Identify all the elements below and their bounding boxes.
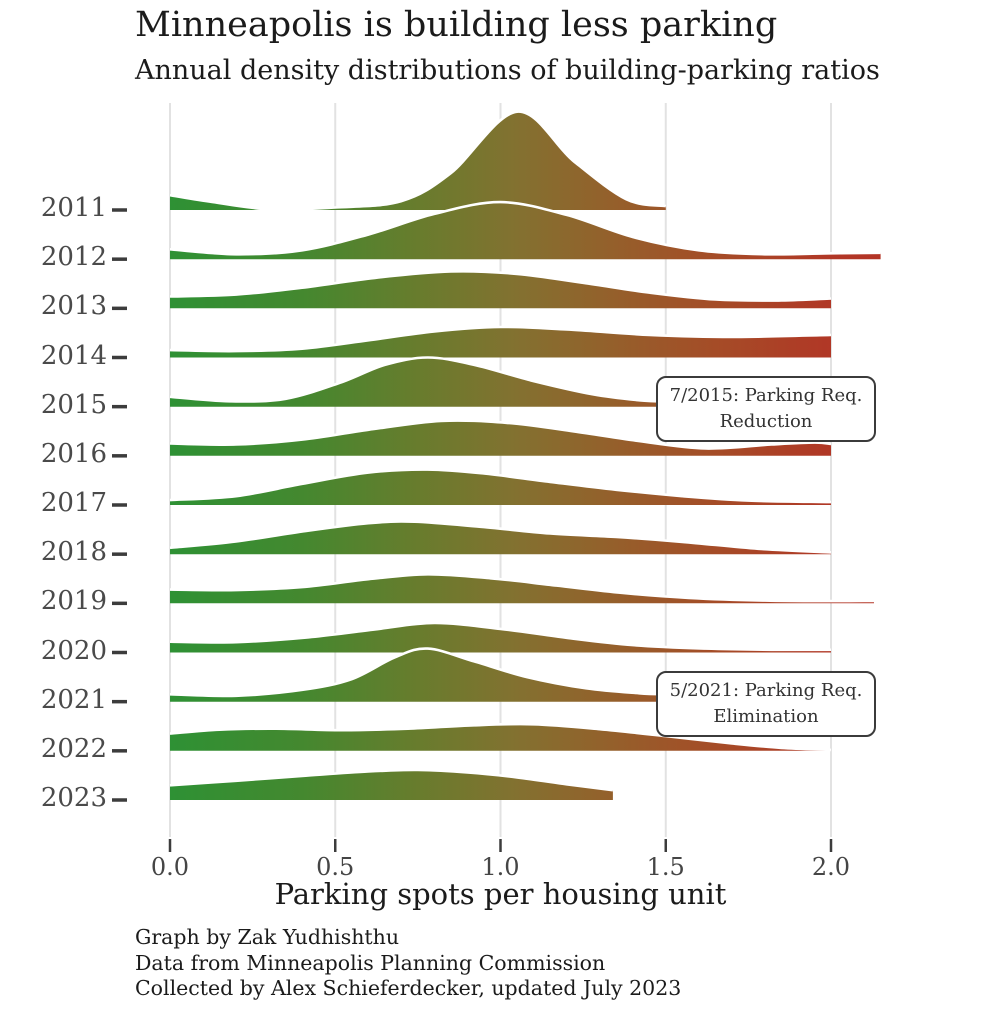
year-label-2019: 2019: [0, 586, 107, 616]
year-label-2012: 2012: [0, 242, 107, 272]
year-label-2011: 2011: [0, 193, 107, 223]
year-label-2018: 2018: [0, 537, 107, 567]
annotation-line-1: 7/2015: Parking Req.: [670, 383, 863, 409]
ridge-fill-2013: [170, 271, 831, 308]
ridge-fill-2014: [170, 327, 831, 358]
annotation-line-2: Reduction: [720, 409, 813, 435]
ridge-fill-2021: [170, 649, 666, 702]
year-label-2015: 2015: [0, 390, 107, 420]
year-label-2021: 2021: [0, 685, 107, 715]
caption: Graph by Zak Yudhishthu Data from Minnea…: [135, 925, 681, 1002]
annotation-2015-parking-req-reduction: 7/2015: Parking Req. Reduction: [656, 376, 876, 442]
chart-canvas: Minneapolis is building less parking Ann…: [0, 0, 989, 1024]
year-label-2022: 2022: [0, 734, 107, 764]
caption-line-3: Collected by Alex Schieferdecker, update…: [135, 976, 681, 1002]
caption-line-2: Data from Minneapolis Planning Commissio…: [135, 951, 681, 977]
year-label-2013: 2013: [0, 291, 107, 321]
x-axis-title: Parking spots per housing unit: [170, 877, 831, 911]
year-label-2017: 2017: [0, 488, 107, 518]
year-label-2023: 2023: [0, 783, 107, 813]
ridge-fill-2023: [170, 770, 613, 800]
year-label-2020: 2020: [0, 636, 107, 666]
year-label-2016: 2016: [0, 439, 107, 469]
caption-line-1: Graph by Zak Yudhishthu: [135, 925, 681, 951]
ridge-fill-2015: [170, 358, 672, 407]
annotation-line-1: 5/2021: Parking Req.: [670, 678, 863, 704]
annotation-2021-parking-req-elimination: 5/2021: Parking Req. Elimination: [656, 671, 876, 737]
year-label-2014: 2014: [0, 341, 107, 371]
annotation-line-2: Elimination: [713, 704, 818, 730]
